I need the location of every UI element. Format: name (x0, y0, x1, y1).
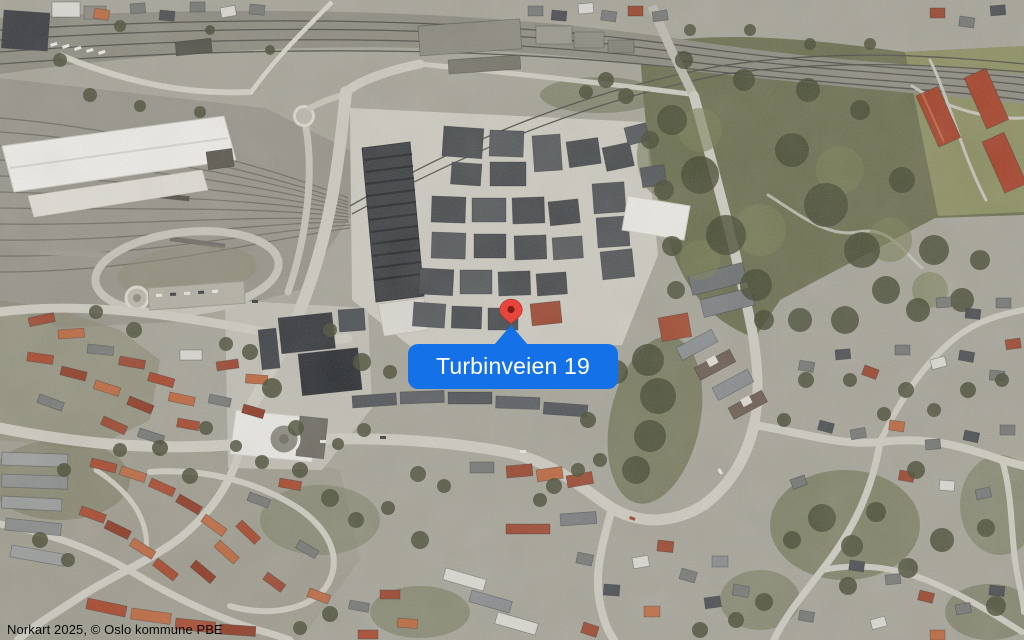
pin-core (507, 305, 514, 312)
map-pin-icon[interactable] (498, 298, 524, 324)
address-callout-label: Turbinveien 19 (436, 355, 590, 378)
address-callout[interactable]: Turbinveien 19 (408, 344, 618, 389)
map-viewport[interactable]: Turbinveien 19 Norkart 2025, © Oslo komm… (0, 0, 1024, 640)
callout-pointer (494, 325, 528, 345)
map-attribution: Norkart 2025, © Oslo kommune PBE (7, 622, 223, 637)
